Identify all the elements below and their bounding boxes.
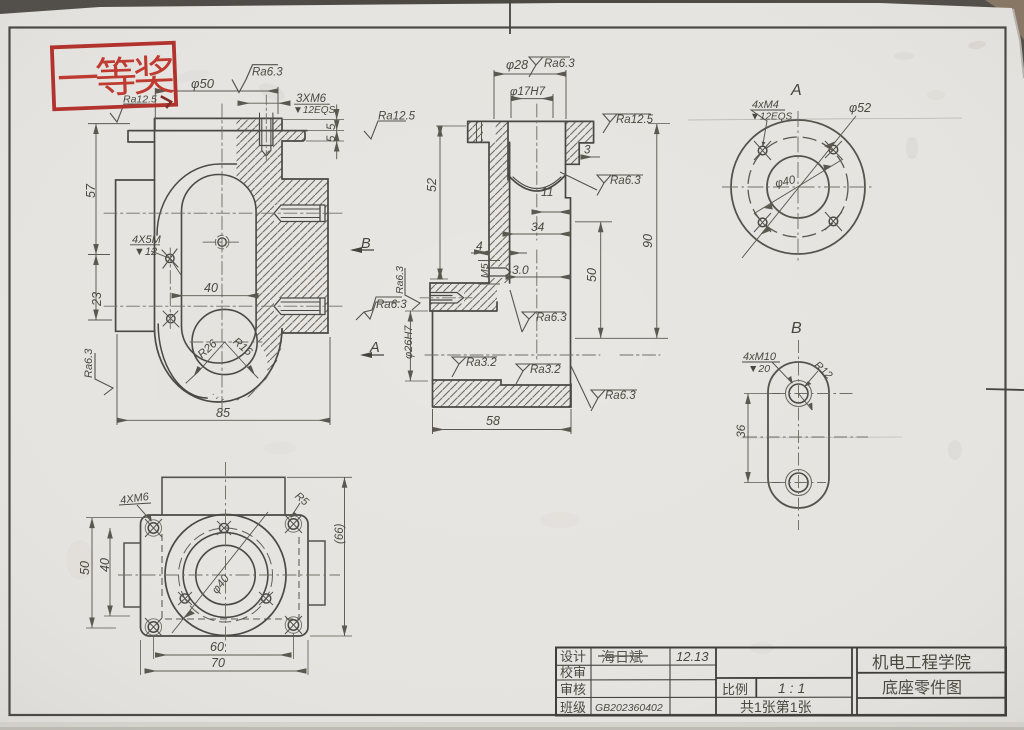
svg-text:比例: 比例 bbox=[722, 682, 748, 697]
svg-text:B: B bbox=[791, 320, 802, 337]
svg-text:4X5M: 4X5M bbox=[132, 234, 162, 246]
svg-text:A: A bbox=[790, 82, 802, 99]
svg-text:机电工程学院: 机电工程学院 bbox=[872, 653, 971, 672]
svg-text:等: 等 bbox=[94, 53, 138, 102]
svg-text:4xM10: 4xM10 bbox=[743, 351, 777, 363]
svg-text:52: 52 bbox=[425, 178, 439, 192]
svg-text:Ra6.3: Ra6.3 bbox=[610, 175, 641, 187]
svg-text:GB202360402: GB202360402 bbox=[595, 702, 663, 714]
svg-text:一: 一 bbox=[56, 55, 100, 104]
svg-text:共1张第1张: 共1张第1张 bbox=[740, 699, 812, 715]
svg-text:11: 11 bbox=[541, 185, 553, 199]
svg-text:36: 36 bbox=[734, 424, 748, 438]
svg-text:奖: 奖 bbox=[132, 52, 176, 101]
svg-text:Ra6.3: Ra6.3 bbox=[376, 299, 407, 311]
svg-text:φ28: φ28 bbox=[506, 58, 528, 72]
svg-text:φ17H7: φ17H7 bbox=[510, 86, 546, 98]
svg-text:▼20: ▼20 bbox=[748, 363, 770, 375]
svg-text:5: 5 bbox=[326, 135, 338, 142]
svg-text:40: 40 bbox=[98, 558, 112, 572]
svg-text:Ra12.5: Ra12.5 bbox=[616, 114, 654, 126]
svg-text:4: 4 bbox=[476, 239, 483, 253]
svg-text:3.0: 3.0 bbox=[512, 263, 529, 277]
svg-text:▼12EQS: ▼12EQS bbox=[293, 105, 335, 116]
svg-text:5: 5 bbox=[326, 123, 338, 130]
svg-text:4xM4: 4xM4 bbox=[752, 99, 779, 111]
svg-text:φ52: φ52 bbox=[849, 101, 871, 115]
svg-text:Ra6.3: Ra6.3 bbox=[394, 266, 406, 294]
svg-text:1 : 1: 1 : 1 bbox=[778, 680, 805, 696]
svg-text:12.13: 12.13 bbox=[676, 649, 709, 664]
svg-text:57: 57 bbox=[84, 183, 98, 198]
svg-text:Ra6.3: Ra6.3 bbox=[536, 312, 567, 324]
svg-text:85: 85 bbox=[216, 406, 230, 420]
svg-text:Ra12.5: Ra12.5 bbox=[378, 111, 416, 123]
svg-text:(66): (66) bbox=[334, 523, 346, 544]
svg-text:50: 50 bbox=[585, 268, 599, 282]
svg-text:φ50: φ50 bbox=[191, 76, 215, 91]
svg-text:Ra6.3: Ra6.3 bbox=[252, 67, 283, 79]
svg-text:58: 58 bbox=[486, 414, 500, 428]
svg-text:Ra3.2: Ra3.2 bbox=[530, 364, 561, 376]
svg-text:▼12: ▼12 bbox=[134, 246, 157, 258]
svg-text:3: 3 bbox=[584, 145, 591, 157]
svg-text:Ra6.3: Ra6.3 bbox=[605, 390, 636, 402]
svg-text:M5: M5 bbox=[479, 263, 491, 278]
svg-text:23: 23 bbox=[90, 292, 104, 307]
svg-text:90: 90 bbox=[641, 234, 655, 248]
svg-text:40: 40 bbox=[204, 281, 218, 295]
svg-text:Ra6.3: Ra6.3 bbox=[544, 58, 575, 70]
svg-text:3XM6: 3XM6 bbox=[296, 93, 327, 105]
svg-text:审核: 审核 bbox=[560, 682, 586, 697]
svg-text:校审: 校审 bbox=[560, 665, 586, 680]
svg-text:设计: 设计 bbox=[560, 649, 586, 664]
svg-text:海日斌: 海日斌 bbox=[601, 649, 643, 665]
svg-text:底座零件图: 底座零件图 bbox=[882, 679, 962, 697]
svg-text:34: 34 bbox=[531, 220, 545, 234]
svg-text:班级: 班级 bbox=[560, 700, 586, 715]
svg-text:60: 60 bbox=[210, 640, 224, 654]
svg-text:φ26H7: φ26H7 bbox=[403, 325, 415, 359]
svg-text:Ra6.3: Ra6.3 bbox=[83, 348, 95, 378]
svg-text:70: 70 bbox=[211, 656, 225, 670]
svg-text:50: 50 bbox=[78, 561, 92, 575]
svg-text:Ra3.2: Ra3.2 bbox=[466, 357, 497, 369]
